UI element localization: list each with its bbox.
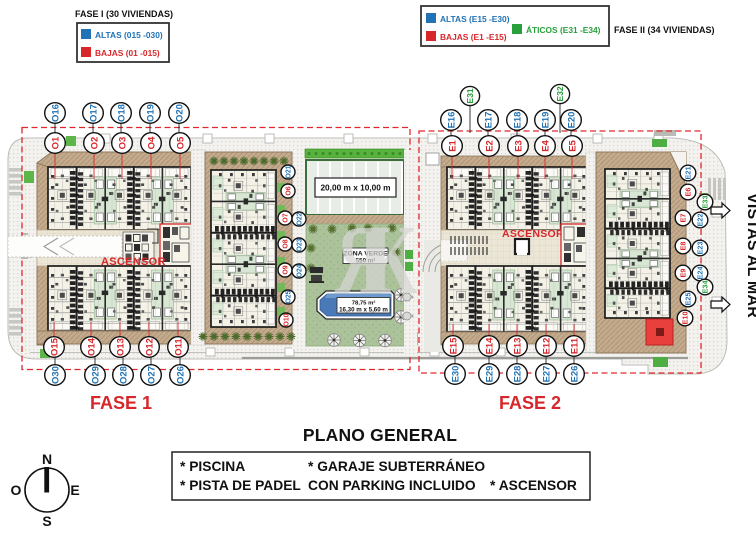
- svg-text:E2: E2: [484, 140, 495, 152]
- svg-text:E20: E20: [566, 112, 577, 129]
- svg-text:E14: E14: [484, 337, 495, 355]
- svg-text:E34: E34: [701, 280, 710, 294]
- svg-text:ALTAS (015 -030): ALTAS (015 -030): [95, 30, 163, 40]
- svg-text:S: S: [42, 513, 51, 528]
- svg-text:O24: O24: [296, 264, 303, 277]
- svg-text:O5: O5: [175, 137, 186, 150]
- svg-text:E9: E9: [679, 269, 688, 278]
- svg-text:E21: E21: [684, 167, 693, 180]
- svg-text:* GARAJE SUBTERRÁNEO: * GARAJE SUBTERRÁNEO: [308, 458, 485, 474]
- svg-text:E12: E12: [541, 338, 552, 355]
- svg-text:E26: E26: [569, 366, 580, 383]
- svg-text:O13: O13: [115, 338, 126, 356]
- svg-text:K: K: [369, 204, 417, 315]
- svg-text:O3: O3: [117, 137, 128, 150]
- svg-text:O26: O26: [175, 366, 186, 384]
- svg-text:O15: O15: [49, 338, 60, 356]
- svg-text:O1: O1: [50, 137, 61, 150]
- svg-text:O20: O20: [174, 104, 185, 122]
- svg-text:FASE II (34 VIVIENDAS): FASE II (34 VIVIENDAS): [614, 25, 715, 35]
- svg-text:E29: E29: [484, 366, 495, 383]
- svg-text:O8: O8: [282, 239, 289, 248]
- svg-text:E10: E10: [681, 312, 690, 325]
- svg-text:O30: O30: [50, 366, 61, 384]
- svg-text:ASCENSOR: ASCENSOR: [502, 228, 564, 240]
- svg-text:FASE I (30 VIVIENDAS): FASE I (30 VIVIENDAS): [75, 9, 173, 19]
- svg-text:E4: E4: [540, 139, 551, 151]
- svg-text:E30: E30: [450, 366, 461, 383]
- svg-text:E33: E33: [701, 196, 710, 209]
- svg-text:E11: E11: [569, 338, 580, 354]
- svg-text:O2: O2: [89, 137, 100, 150]
- svg-text:E5: E5: [567, 140, 578, 152]
- svg-text:CON PARKING INCLUIDO: CON PARKING INCLUIDO: [308, 478, 476, 493]
- svg-text:O11: O11: [173, 338, 184, 355]
- svg-text:O29: O29: [90, 366, 101, 384]
- svg-text:BAJAS (E1 -E15): BAJAS (E1 -E15): [440, 32, 507, 42]
- svg-text:E3: E3: [513, 140, 524, 152]
- svg-text:E15: E15: [448, 338, 459, 355]
- svg-text:O18: O18: [116, 104, 127, 122]
- svg-text:E23: E23: [696, 242, 705, 255]
- svg-text:E1: E1: [447, 140, 458, 152]
- svg-text:E25: E25: [684, 293, 693, 306]
- svg-text:ÁTICOS (E31 -E34): ÁTICOS (E31 -E34): [526, 24, 601, 35]
- svg-text:E18: E18: [512, 112, 523, 129]
- svg-text:O10: O10: [283, 313, 290, 326]
- svg-text:O22: O22: [296, 212, 303, 225]
- svg-text:E7: E7: [679, 214, 688, 223]
- svg-text:O: O: [11, 482, 22, 498]
- svg-text:O21: O21: [285, 165, 292, 178]
- svg-text:O25: O25: [285, 290, 292, 303]
- svg-text:E13: E13: [512, 338, 523, 355]
- svg-text:O17: O17: [88, 104, 99, 122]
- svg-text:PLANO GENERAL: PLANO GENERAL: [303, 425, 457, 445]
- svg-text:VISTAS AL MAR: VISTAS AL MAR: [744, 193, 756, 318]
- svg-text:* PISCINA: * PISCINA: [180, 459, 245, 474]
- svg-text:20,00 m x 10,00 m: 20,00 m x 10,00 m: [320, 183, 390, 193]
- svg-text:E19: E19: [540, 112, 551, 129]
- svg-text:ALTAS (E15 -E30): ALTAS (E15 -E30): [440, 14, 510, 24]
- svg-text:O4: O4: [146, 136, 157, 149]
- svg-text:O23: O23: [296, 238, 303, 251]
- svg-text:N: N: [42, 451, 52, 467]
- svg-text:FASE 1: FASE 1: [90, 393, 152, 413]
- svg-text:* PISTA DE PADEL: * PISTA DE PADEL: [180, 478, 301, 493]
- svg-text:E8: E8: [679, 242, 688, 251]
- svg-text:O6: O6: [285, 186, 292, 195]
- svg-text:O9: O9: [282, 265, 289, 274]
- svg-text:* ASCENSOR: * ASCENSOR: [490, 478, 577, 493]
- svg-text:E: E: [70, 482, 79, 498]
- svg-text:O16: O16: [50, 104, 61, 122]
- svg-text:O12: O12: [144, 338, 155, 356]
- svg-text:E17: E17: [483, 112, 494, 129]
- svg-text:O28: O28: [118, 366, 129, 384]
- svg-text:BAJAS (01 -015): BAJAS (01 -015): [95, 48, 160, 58]
- svg-text:O19: O19: [145, 104, 156, 122]
- svg-text:E28: E28: [512, 366, 523, 383]
- svg-text:E32: E32: [555, 86, 565, 102]
- svg-text:E31: E31: [465, 88, 475, 104]
- svg-text:E27: E27: [541, 366, 552, 383]
- svg-text:E6: E6: [684, 188, 693, 197]
- svg-text:O7: O7: [282, 213, 289, 222]
- svg-text:O27: O27: [146, 366, 157, 384]
- svg-text:O14: O14: [86, 337, 97, 356]
- svg-text:FASE 2: FASE 2: [499, 393, 561, 413]
- svg-text:E16: E16: [446, 112, 457, 129]
- svg-text:E22: E22: [696, 214, 705, 227]
- svg-text:E24: E24: [696, 266, 705, 280]
